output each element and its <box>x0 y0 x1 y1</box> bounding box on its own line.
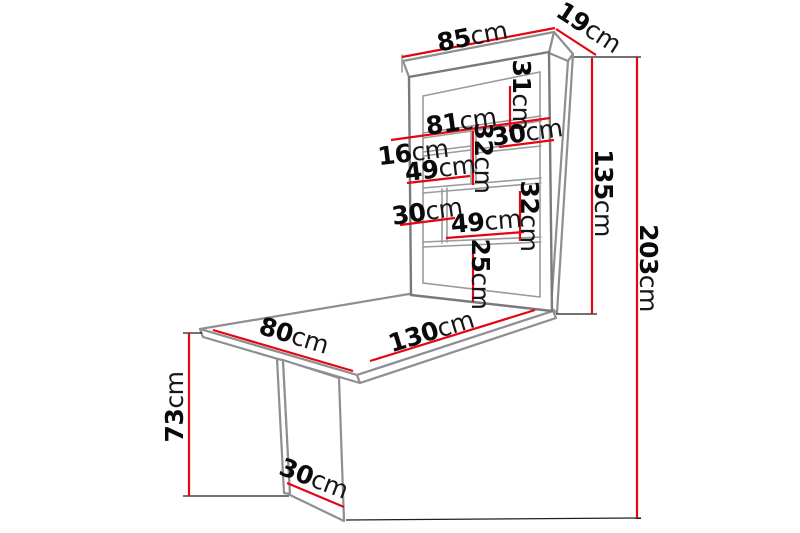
label-row3-height: 32cm <box>516 181 545 252</box>
label-row3-right-width: 49cm <box>449 203 522 238</box>
cabinet-top-right-corner <box>549 32 573 61</box>
table <box>200 294 556 521</box>
label-table-height: 73cm <box>160 372 189 443</box>
label-cabinet-height: 135cm <box>590 149 619 237</box>
label-bottom-compartment-height: 25cm <box>467 239 496 310</box>
furniture-dimension-diagram: 85cm 19cm 31cm 81cm 16cm 49cm 32cm 30cm … <box>0 0 800 533</box>
cabinet-right-side <box>551 54 573 313</box>
label-overall-height: 203cm <box>635 224 664 312</box>
extension-floor-right <box>346 518 641 520</box>
diagram-page: 85cm 19cm 31cm 81cm 16cm 49cm 32cm 30cm … <box>0 0 800 533</box>
